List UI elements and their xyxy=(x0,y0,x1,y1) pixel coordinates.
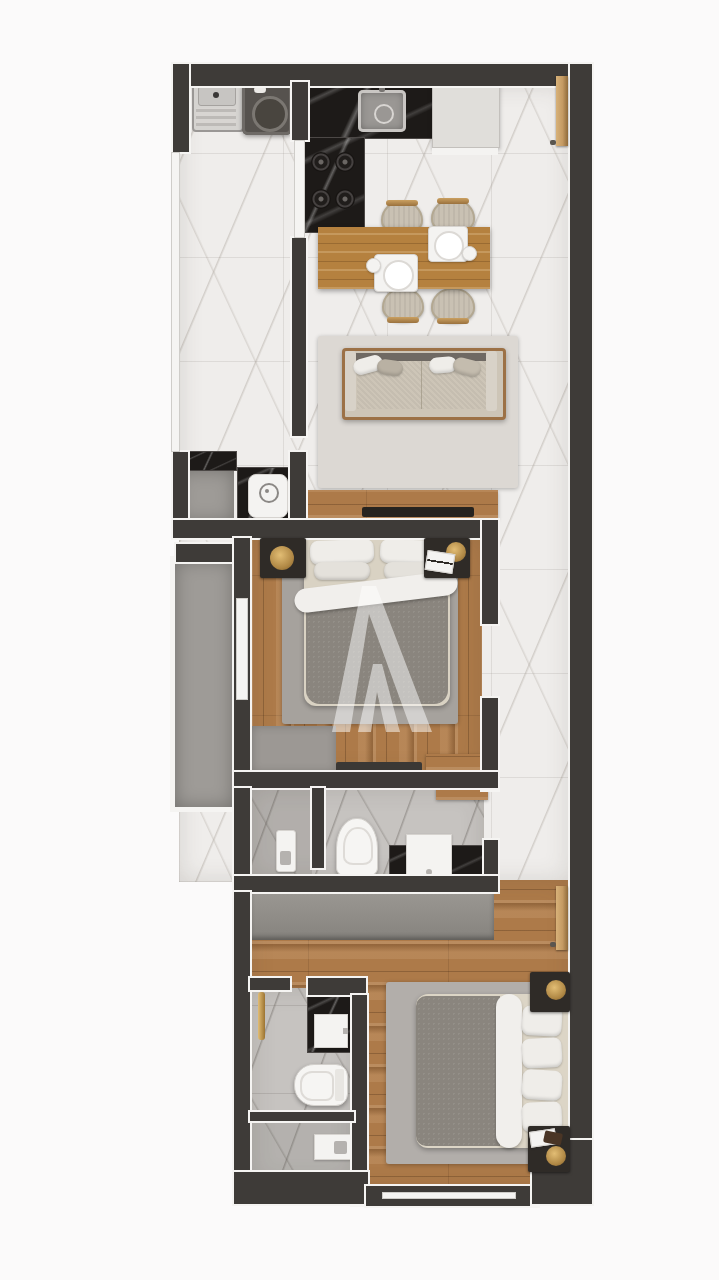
window-bottom xyxy=(382,1192,516,1199)
cup xyxy=(462,246,477,261)
wall-kitchen-divider-bottom xyxy=(292,238,306,436)
gold-tray xyxy=(546,1146,566,1166)
wall-bathroom2-shower-divider xyxy=(250,1112,354,1121)
cooktop-burner xyxy=(311,189,331,209)
shower-tray xyxy=(314,1134,352,1160)
gold-tray xyxy=(270,546,294,570)
nightstand xyxy=(424,538,470,578)
vanity-sink xyxy=(406,834,452,876)
toilet xyxy=(294,1064,348,1106)
utility-sink xyxy=(192,82,244,132)
wall-bedroom1-right-upper xyxy=(482,520,498,624)
cup xyxy=(366,258,381,273)
shower-panel xyxy=(276,830,296,872)
sofa xyxy=(342,348,506,420)
washer-control xyxy=(254,86,266,93)
sink-faucet xyxy=(426,869,432,875)
wall-bedroom1-bathroom1 xyxy=(234,772,498,788)
wood-bench xyxy=(426,754,486,770)
cooktop-burner xyxy=(311,152,331,172)
entry-door xyxy=(556,76,568,146)
nightstand xyxy=(260,538,306,578)
wall-bedroom2-left xyxy=(234,892,250,1204)
wall-bathroom2-top-right xyxy=(308,978,366,995)
kitchen-counter-cooktop xyxy=(304,138,364,232)
vanity-sink xyxy=(314,1014,348,1048)
plate xyxy=(383,260,414,291)
gold-tray xyxy=(546,980,566,1000)
wall-bottom-left xyxy=(234,1172,368,1204)
plate xyxy=(434,231,464,261)
bed2-folded-blanket xyxy=(496,994,522,1148)
wall-top xyxy=(173,64,592,86)
shower-drain xyxy=(280,851,291,865)
watermark-logo xyxy=(324,580,436,732)
bedroom2-wardrobe xyxy=(250,890,494,940)
window-left xyxy=(171,152,180,452)
balcony-glass-door xyxy=(236,598,248,700)
sink-faucet xyxy=(343,1028,348,1034)
chair-back xyxy=(437,198,469,204)
washer-top-icon xyxy=(259,483,279,503)
bedroom2-door-handle xyxy=(550,942,556,947)
gold-towel-rail xyxy=(258,992,265,1040)
wall-bathroom1-bedroom2 xyxy=(234,876,498,892)
bed1-pillow xyxy=(314,562,370,580)
entry-door-handle xyxy=(550,140,556,145)
dining-chair xyxy=(382,288,424,322)
bedroom2-door xyxy=(556,886,568,950)
chair-back xyxy=(387,317,419,323)
bed2-duvet xyxy=(416,996,500,1146)
wall-left-top xyxy=(173,64,189,152)
shower-drain xyxy=(334,1141,347,1154)
chair-back xyxy=(386,200,418,206)
bed-2 xyxy=(416,994,568,1148)
sliding-door-kitchen xyxy=(294,140,305,238)
cooktop-burner xyxy=(335,189,355,209)
kitchen-sink xyxy=(358,90,406,132)
toilet xyxy=(336,818,378,878)
wall-right xyxy=(570,64,592,1204)
book-stack xyxy=(425,550,456,574)
wood-shelf xyxy=(436,788,488,800)
toilet-seat xyxy=(343,827,373,865)
floor-plan xyxy=(0,0,719,1280)
wall-living-bedroom1 xyxy=(173,520,498,538)
tv xyxy=(362,507,474,517)
washer-top-dot xyxy=(265,489,269,493)
washing-machine xyxy=(242,82,292,135)
bed2-pillow xyxy=(521,1069,563,1102)
nightstand xyxy=(530,972,570,1012)
balcony-floor xyxy=(175,561,233,807)
wall-kitchen-divider-top xyxy=(292,82,308,140)
wall-bathroom1-partition xyxy=(312,788,324,868)
chair-back xyxy=(437,318,469,324)
refrigerator-ledge xyxy=(432,148,498,155)
wall-bathroom1-right xyxy=(484,840,498,880)
utility-sink-drainboard xyxy=(196,108,236,126)
toilet-seat xyxy=(300,1071,334,1101)
bedroom1-wardrobe-mat xyxy=(252,726,336,772)
utility-sink-drain xyxy=(213,92,219,98)
service-balcony-counter xyxy=(188,452,236,470)
bed2-pillow xyxy=(521,1037,563,1069)
kitchen-sink-drain xyxy=(374,104,394,124)
dining-chair xyxy=(431,288,475,323)
refrigerator xyxy=(432,82,500,148)
wall-niche xyxy=(290,452,306,522)
sofa-armrest xyxy=(345,351,356,411)
place-setting xyxy=(374,254,418,292)
wall-bathroom2-top-left xyxy=(250,978,290,990)
washing-machine-top xyxy=(248,474,288,518)
washer-drum xyxy=(252,96,288,132)
sofa-armrest xyxy=(486,351,497,411)
cooktop-burner xyxy=(335,152,355,172)
wall-left-mid xyxy=(173,452,188,522)
nightstand xyxy=(528,1126,570,1172)
toilet-tank xyxy=(335,1069,344,1101)
